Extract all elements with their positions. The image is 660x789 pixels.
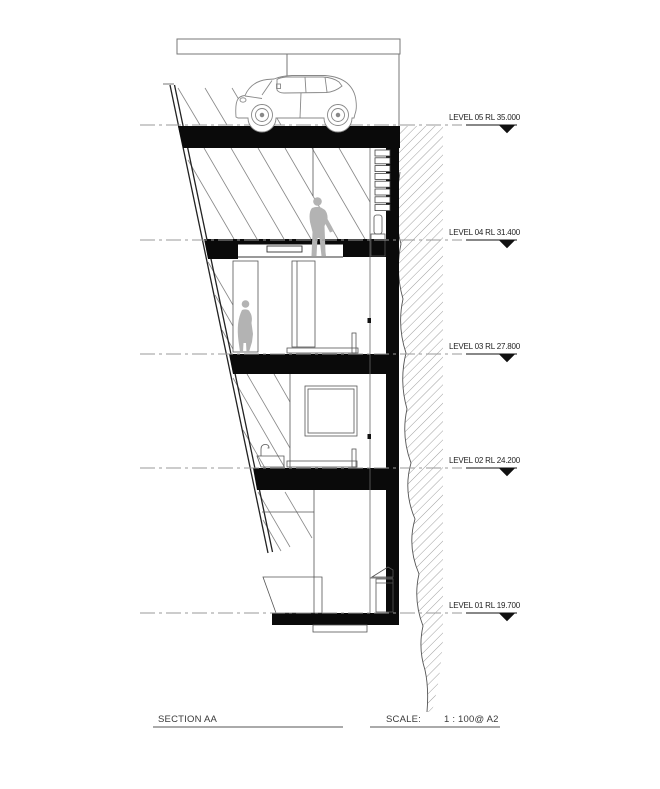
floor-slab-level-03 xyxy=(229,354,399,374)
wardrobe-panel xyxy=(292,261,315,347)
level-label-04: LEVEL 04 RL 31.400 xyxy=(449,228,529,237)
bed xyxy=(287,348,358,353)
section-drawing xyxy=(0,0,660,789)
bed xyxy=(287,461,357,467)
bench xyxy=(263,577,322,613)
scale-value: 1 : 100@ A2 xyxy=(444,714,499,725)
level-label-03: LEVEL 03 RL 27.800 xyxy=(449,342,529,351)
floor-slab-level-01 xyxy=(272,613,399,625)
level-04-sunken-floor xyxy=(238,246,343,257)
floor-slab-level-05 xyxy=(178,126,400,148)
sunken-tray xyxy=(267,246,302,252)
level-markers xyxy=(466,125,517,621)
level-label-01: LEVEL 01 RL 19.700 xyxy=(449,601,529,610)
title-block: SECTION AA SCALE: 1 : 100@ A2 xyxy=(0,712,660,742)
level-02-furniture xyxy=(257,374,357,468)
vase xyxy=(374,215,382,234)
bed-headboard xyxy=(352,449,356,467)
standing-person xyxy=(310,197,334,256)
section-title: SECTION AA xyxy=(158,714,217,725)
floor-slab-level-04-left xyxy=(204,239,238,259)
architectural-section-page: LEVEL 05 RL 35.000 LEVEL 04 RL 31.400 LE… xyxy=(0,0,660,789)
door-handle xyxy=(368,318,372,323)
standing-woman xyxy=(238,300,253,352)
level-01-furniture xyxy=(262,490,393,632)
scale-label: SCALE: xyxy=(386,714,421,725)
car-illustration xyxy=(236,76,357,133)
floor-slab-level-02 xyxy=(253,468,399,490)
footing xyxy=(313,625,367,632)
door-handle xyxy=(368,434,372,439)
bed-headboard xyxy=(352,333,356,353)
level-label-02: LEVEL 02 RL 24.200 xyxy=(449,456,529,465)
faucet xyxy=(261,445,269,457)
inner-wall-line xyxy=(368,148,372,613)
level-label-05: LEVEL 05 RL 35.000 xyxy=(449,113,529,122)
earth-hatch xyxy=(396,126,443,712)
picture-frame xyxy=(305,386,357,436)
